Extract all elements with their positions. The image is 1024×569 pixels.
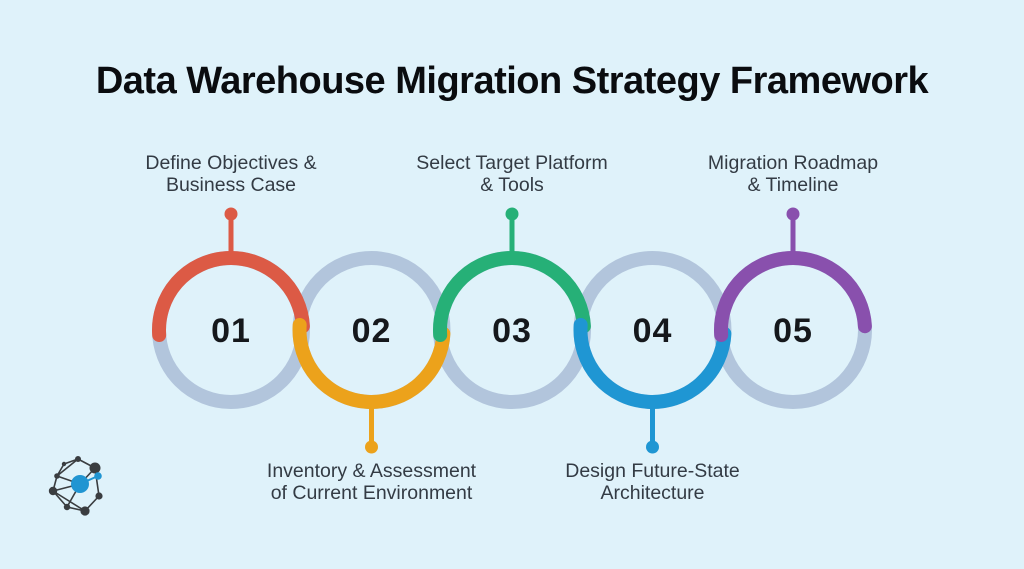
step-label-03: Select Target Platform& Tools	[416, 153, 607, 196]
infographic-canvas: Data Warehouse Migration Strategy Framew…	[0, 0, 1024, 569]
step-label-line: Inventory & Assessment	[267, 461, 476, 483]
step-label-line: Define Objectives &	[145, 153, 316, 175]
step-label-line: Migration Roadmap	[708, 153, 878, 175]
step-label-line: Business Case	[145, 175, 316, 197]
step-label-line: Select Target Platform	[416, 153, 607, 175]
step-label-05: Migration Roadmap& Timeline	[708, 153, 878, 196]
step-label-01: Define Objectives &Business Case	[145, 153, 316, 196]
step-label-line: of Current Environment	[267, 483, 476, 505]
step-label-04: Design Future-StateArchitecture	[565, 461, 740, 504]
step-labels: Define Objectives &Business CaseInventor…	[0, 0, 1024, 569]
network-graph-logo	[46, 454, 110, 520]
step-label-line: Design Future-State	[565, 461, 740, 483]
step-label-line: Architecture	[565, 483, 740, 505]
step-label-line: & Tools	[416, 175, 607, 197]
step-label-line: & Timeline	[708, 175, 878, 197]
step-label-02: Inventory & Assessmentof Current Environ…	[267, 461, 476, 504]
